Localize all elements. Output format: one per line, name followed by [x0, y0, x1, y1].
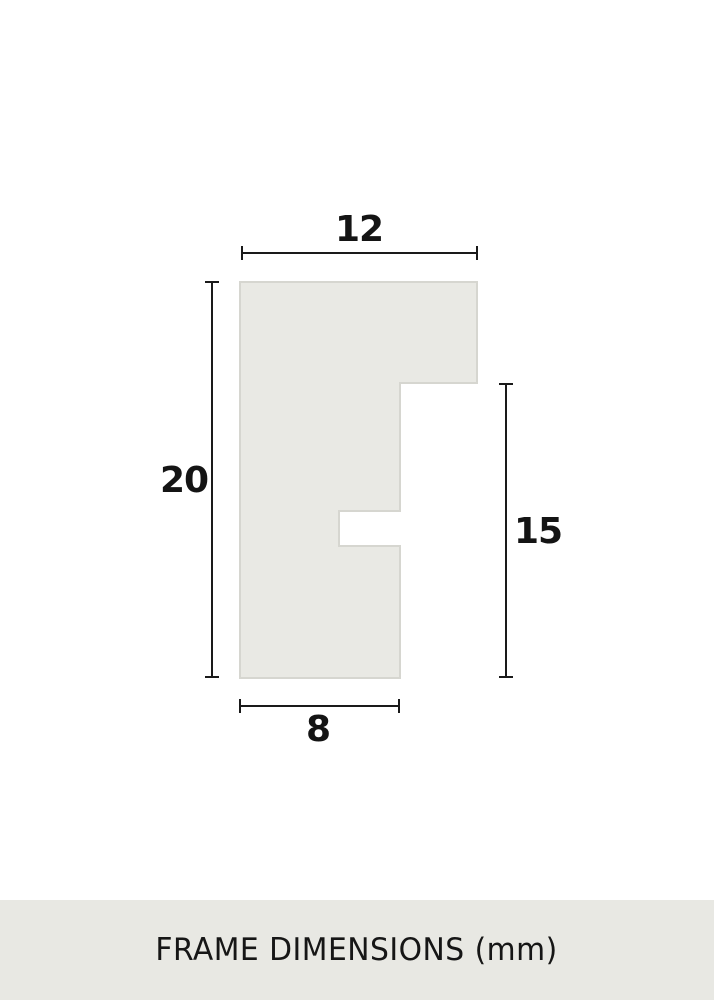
caption-bar: FRAME DIMENSIONS (mm): [0, 900, 714, 1000]
dim-label-bottom-width: 8: [306, 712, 330, 748]
dim-label-right-height: 15: [514, 514, 562, 550]
frame-dimensions-diagram: 12 20 15 8 FRAME DIMENSIONS (mm): [0, 0, 714, 1000]
caption-text: FRAME DIMENSIONS (mm): [156, 932, 558, 968]
dim-line-right: [499, 384, 513, 677]
dim-label-left-height: 20: [160, 463, 208, 499]
profile-diagram-svg: [0, 0, 714, 1000]
dim-label-top-width: 12: [335, 212, 383, 248]
frame-profile-shape: [240, 282, 477, 678]
